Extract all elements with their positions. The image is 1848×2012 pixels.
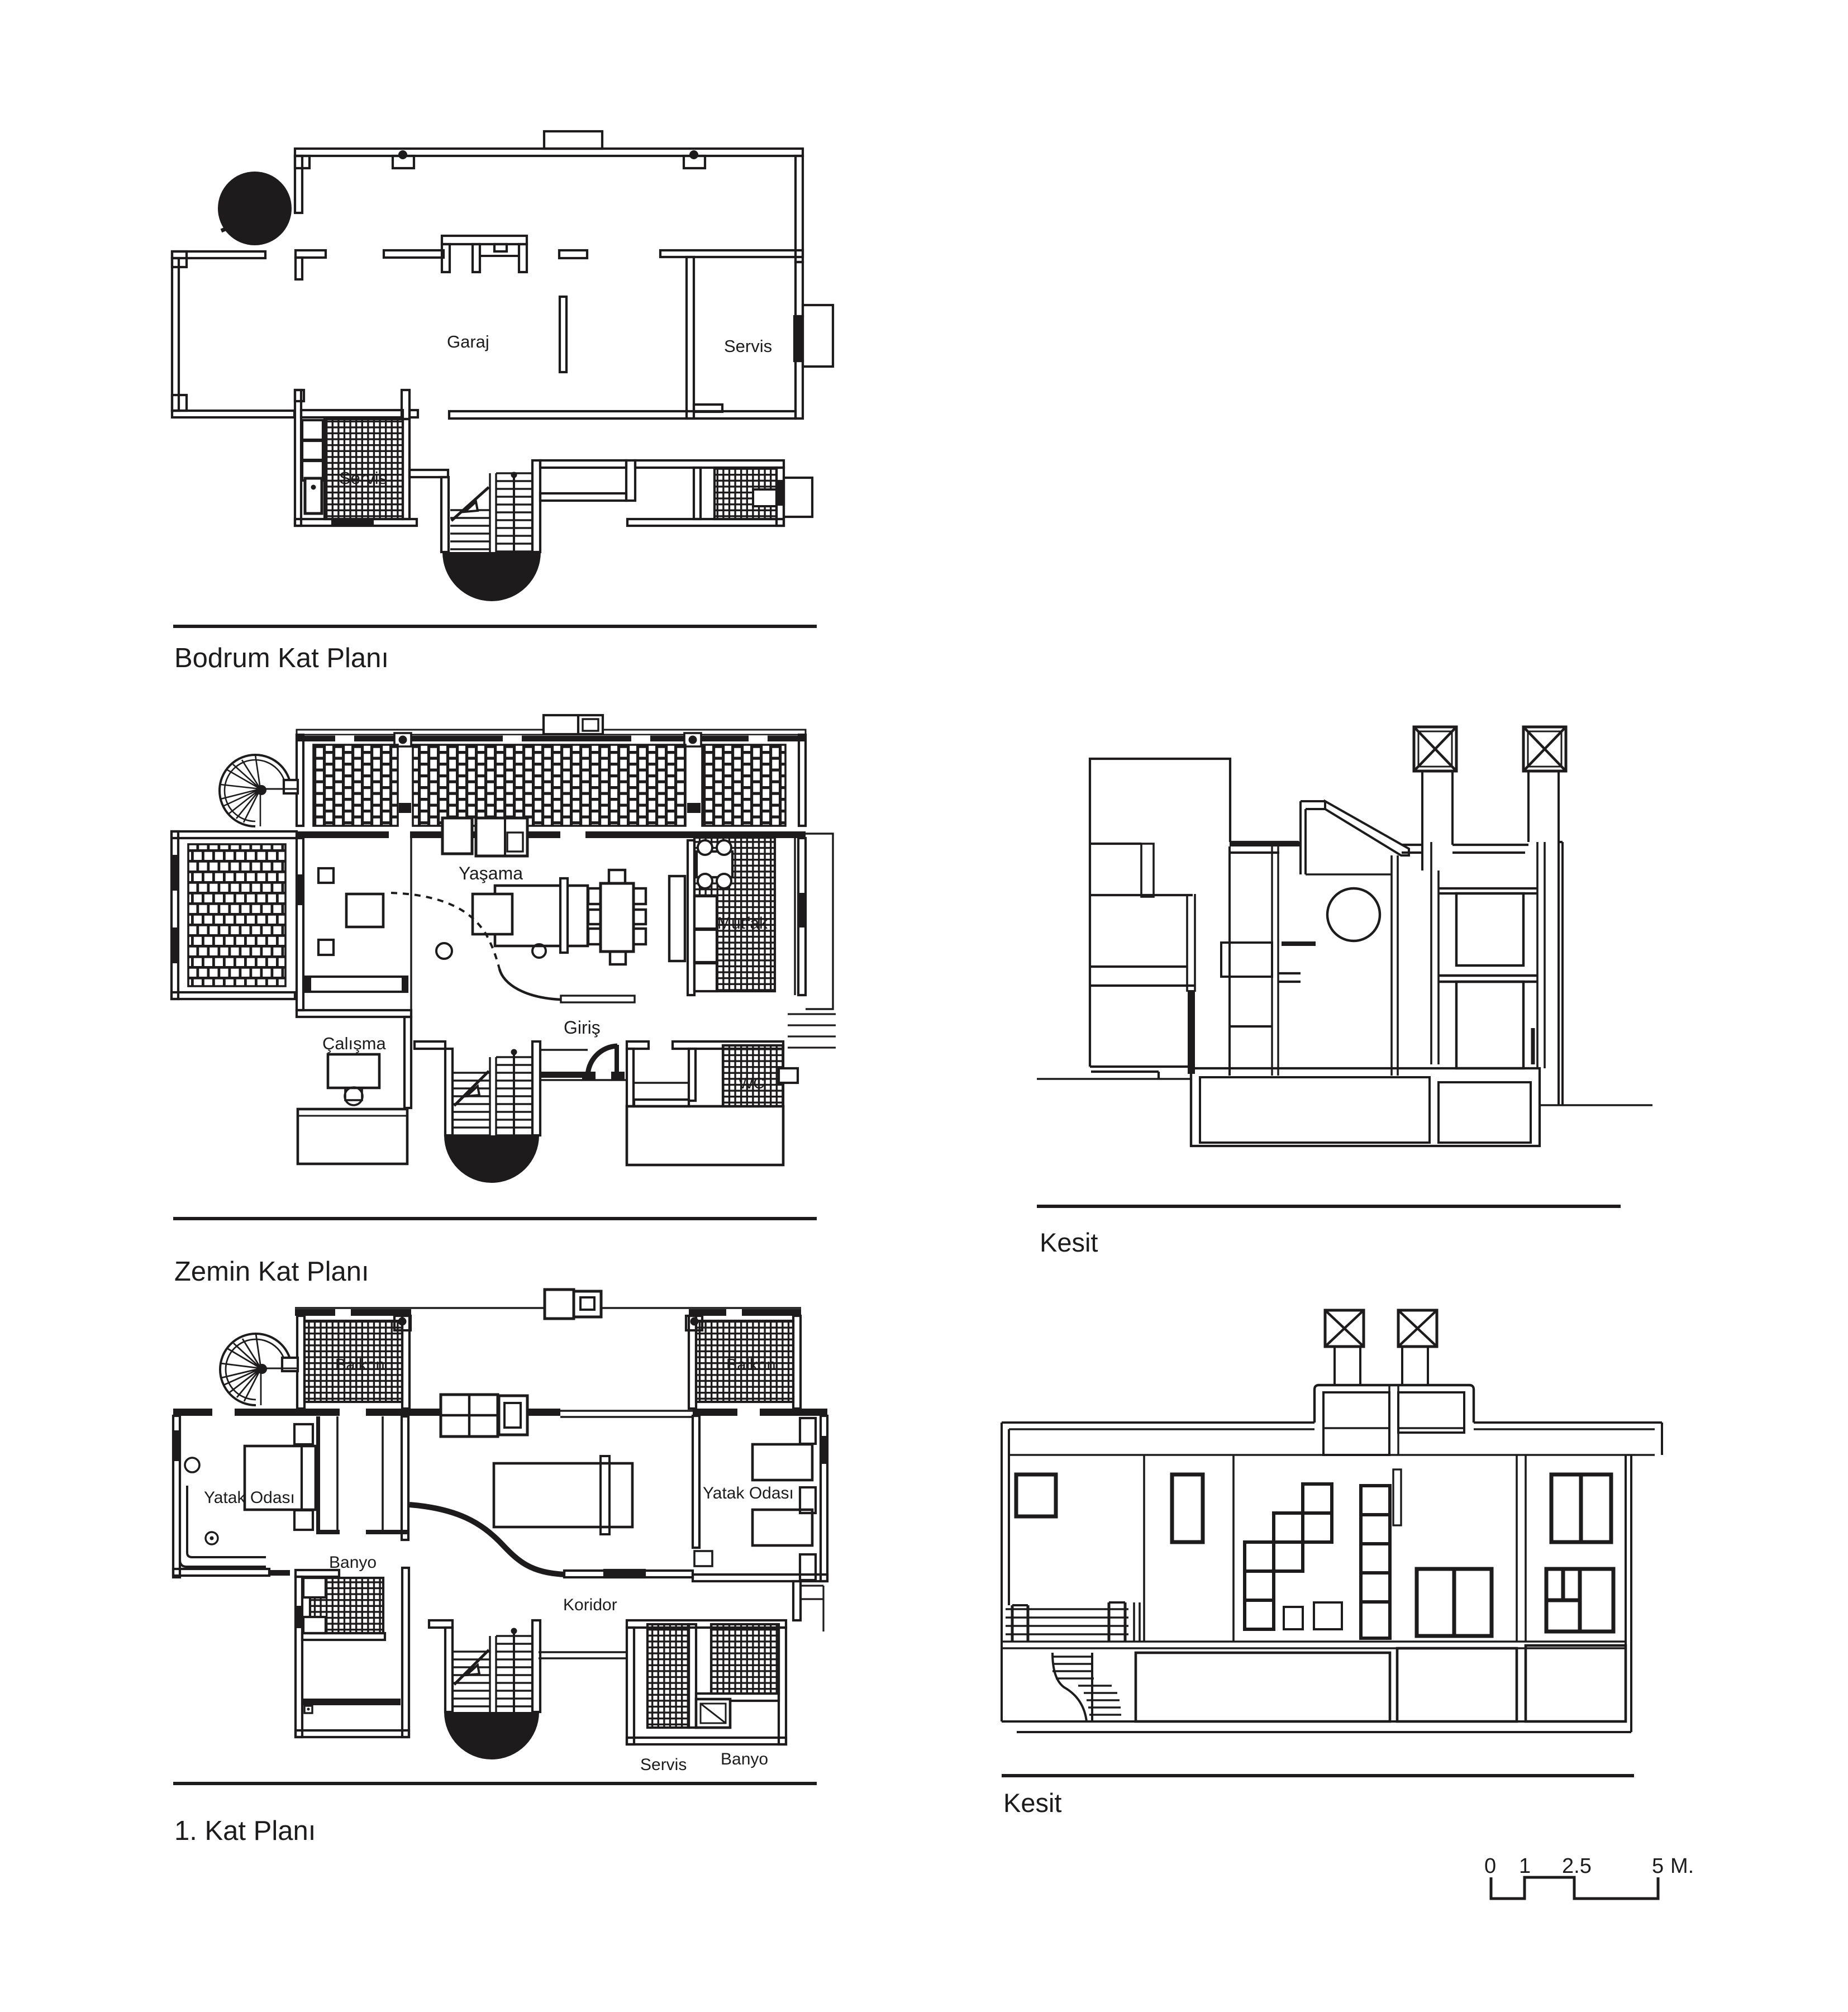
svg-text:Giriş: Giriş xyxy=(564,1017,601,1038)
svg-text:Balkon: Balkon xyxy=(726,1356,776,1374)
svg-text:Banyo: Banyo xyxy=(721,1750,768,1768)
svg-text:Yatak Odası: Yatak Odası xyxy=(703,1484,794,1502)
svg-text:2.5: 2.5 xyxy=(1562,1854,1592,1878)
svg-text:M.: M. xyxy=(1670,1854,1694,1878)
svg-text:Kesit: Kesit xyxy=(1040,1228,1098,1257)
svg-text:Mutfak: Mutfak xyxy=(717,914,768,933)
svg-text:Yatak Odası: Yatak Odası xyxy=(204,1488,295,1507)
svg-text:Servis: Servis xyxy=(339,468,387,488)
svg-text:Çalışma: Çalışma xyxy=(322,1034,386,1053)
svg-text:WC: WC xyxy=(739,1074,765,1092)
svg-text:Garaj: Garaj xyxy=(447,332,489,351)
svg-text:Kesit: Kesit xyxy=(1003,1788,1062,1818)
svg-text:Servis: Servis xyxy=(724,336,772,356)
svg-text:1: 1 xyxy=(1519,1854,1531,1878)
svg-text:Servis: Servis xyxy=(640,1756,687,1774)
svg-text:Bodrum Kat Planı: Bodrum Kat Planı xyxy=(174,643,389,673)
svg-text:Zemin Kat Planı: Zemin Kat Planı xyxy=(174,1257,369,1287)
svg-text:Yaşama: Yaşama xyxy=(459,863,523,883)
svg-text:1. Kat Planı: 1. Kat Planı xyxy=(174,1816,316,1846)
svg-text:Koridor: Koridor xyxy=(563,1596,617,1614)
svg-text:5: 5 xyxy=(1652,1854,1664,1878)
svg-text:Balkon: Balkon xyxy=(335,1356,385,1374)
svg-text:0: 0 xyxy=(1484,1854,1496,1878)
